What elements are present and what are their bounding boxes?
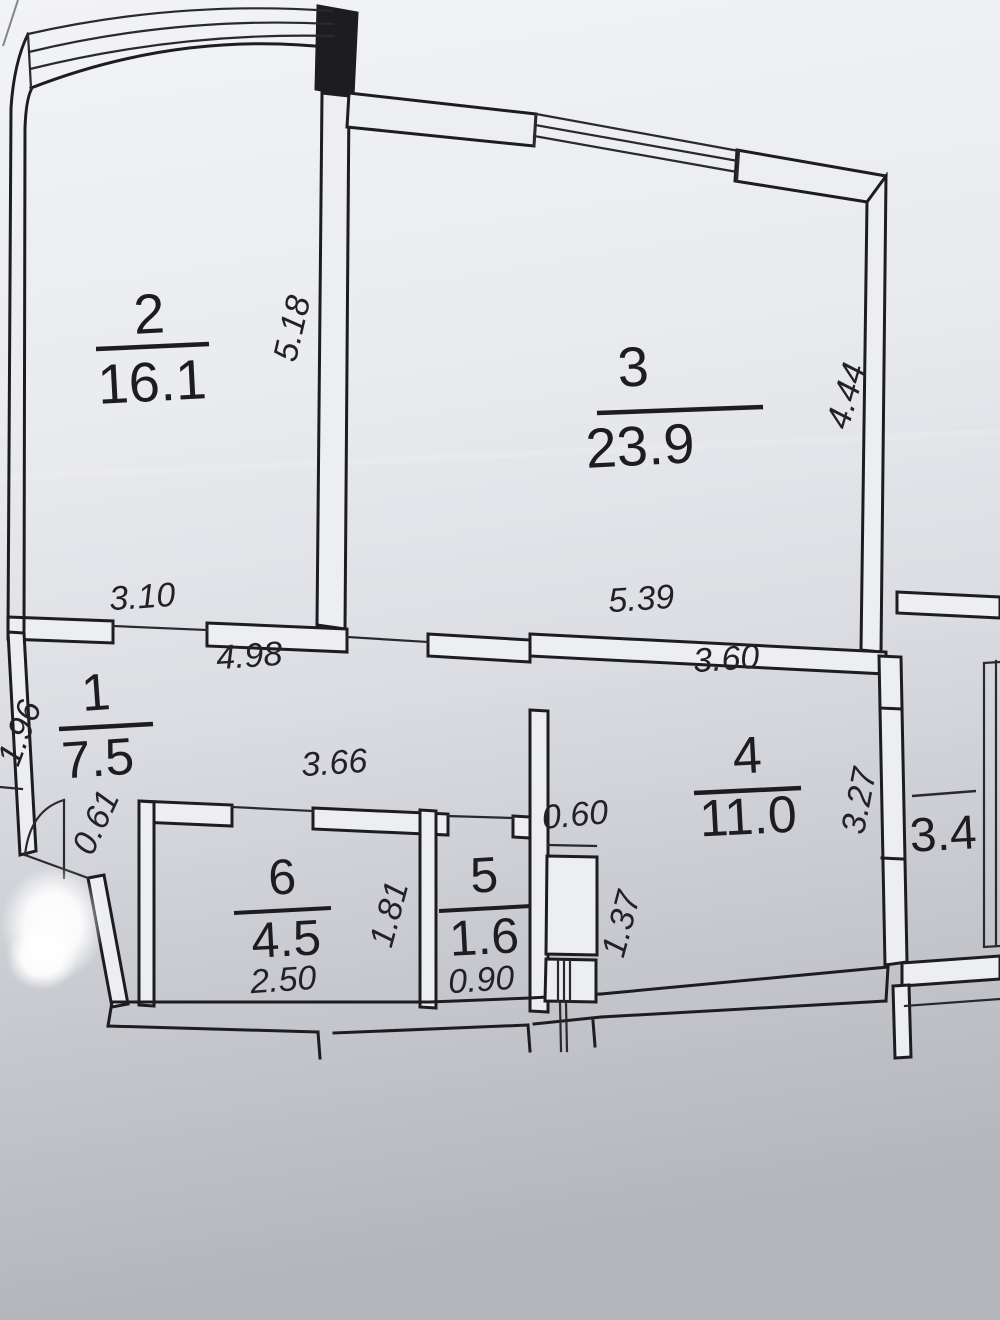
dim-3-66: 3.66 <box>300 742 369 785</box>
wall-balcony-left <box>879 656 907 965</box>
wall-balcony-top <box>897 592 1000 618</box>
wall-room2-room3 <box>317 93 349 629</box>
dim-0-60: 0.60 <box>540 793 609 837</box>
wall-corner-block <box>316 6 357 96</box>
wall-hall-top <box>428 634 530 662</box>
shaft-box-upper <box>546 856 597 955</box>
dim-0-90: 0.90 <box>447 959 516 1002</box>
room3-area: 23.9 <box>584 411 696 480</box>
room4-area: 11.0 <box>698 786 798 849</box>
room1-area: 7.5 <box>60 728 136 791</box>
wall-stub-below-balcony <box>893 985 911 1058</box>
room2-number: 2 <box>132 281 166 346</box>
room2-area: 16.1 <box>96 347 208 416</box>
wall-room5-top-right <box>513 816 530 838</box>
room5-number: 5 <box>469 846 500 903</box>
balcony-area: 3.4 <box>908 806 977 862</box>
wall-room6-left <box>139 801 154 1006</box>
dim-3-10: 3.10 <box>108 576 177 619</box>
wall-room6-room5 <box>420 810 436 1008</box>
room1-number: 1 <box>79 663 112 723</box>
floor-plan-photo: 2 16.1 3 23.9 1 7.5 4 11.0 6 4.5 5 1.6 3… <box>0 0 1000 1320</box>
room4-number: 4 <box>731 726 763 785</box>
dim-5-39: 5.39 <box>607 578 676 621</box>
dim-2-50: 2.50 <box>248 959 318 1002</box>
shaft-extension-line <box>548 845 596 846</box>
wall-balcony-bottom <box>902 956 1000 986</box>
room3-number: 3 <box>616 334 650 399</box>
dim-3-60: 3.60 <box>692 638 761 681</box>
room5-area: 1.6 <box>448 907 520 967</box>
glare-spot-small <box>6 926 78 990</box>
room6-number: 6 <box>267 848 298 905</box>
dim-4-98: 4.98 <box>215 635 284 678</box>
floor-plan-drawing: 2 16.1 3 23.9 1 7.5 4 11.0 6 4.5 5 1.6 3… <box>0 0 1000 1320</box>
